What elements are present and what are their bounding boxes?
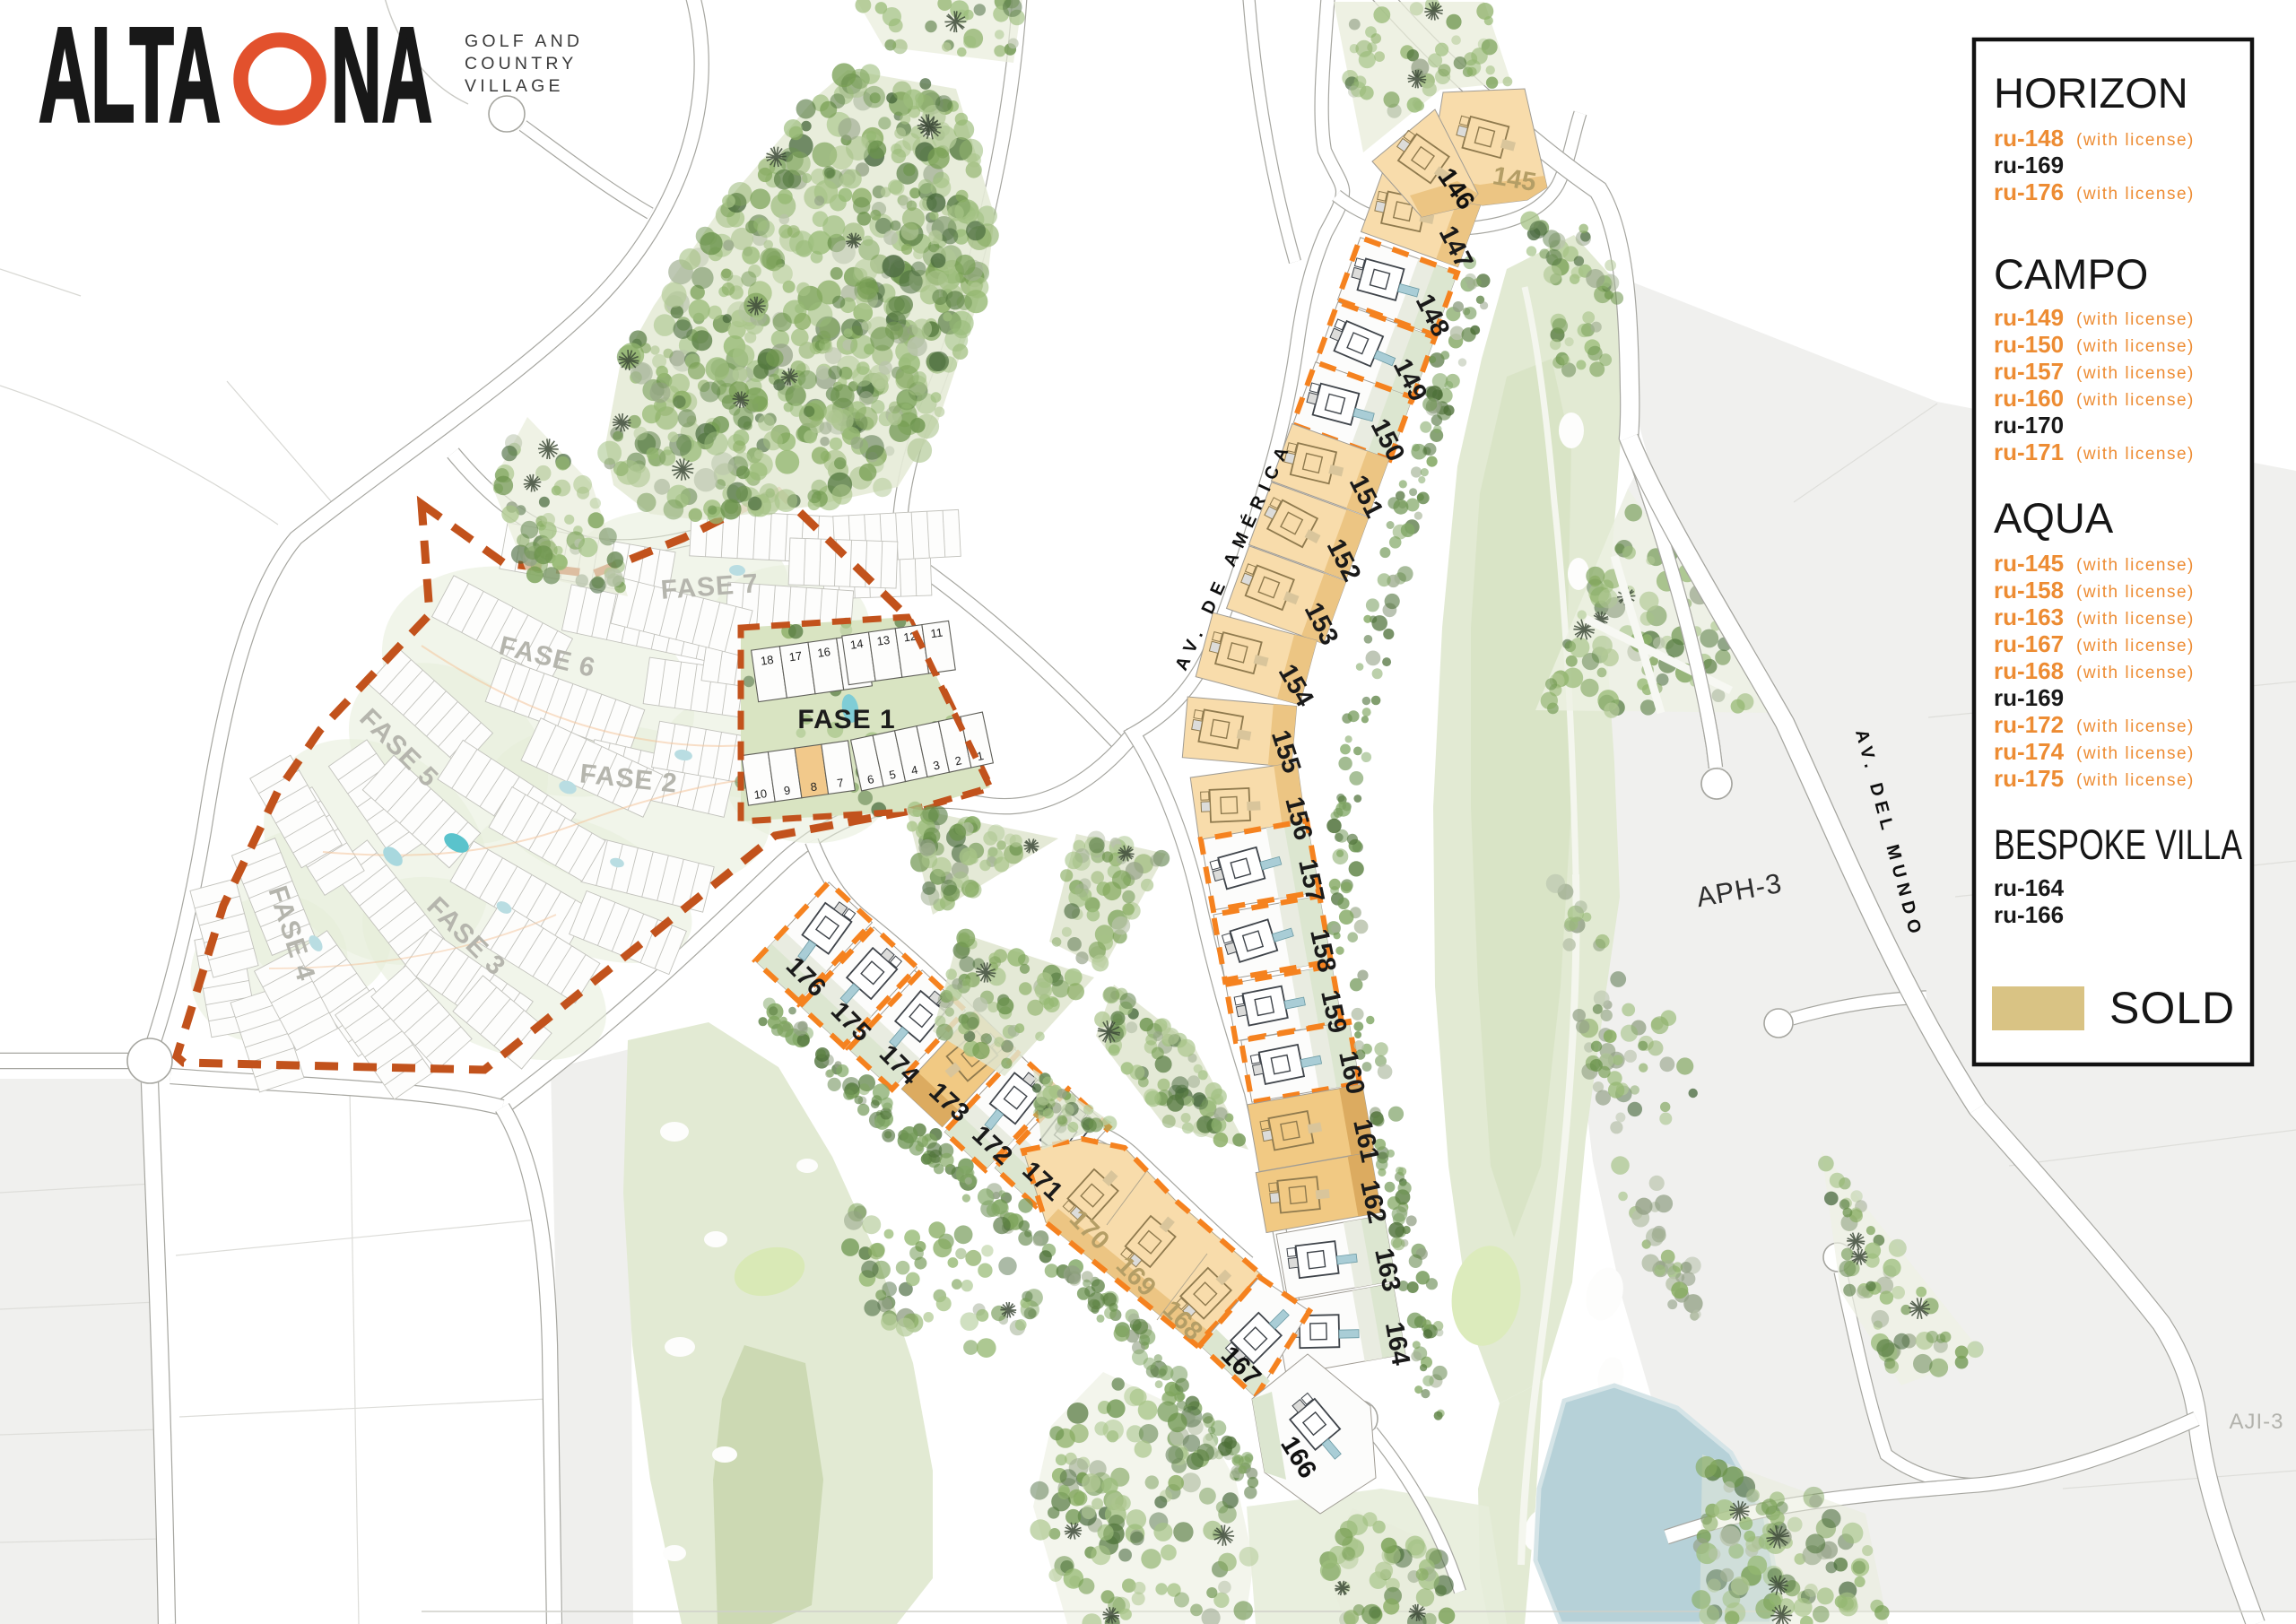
svg-text:(with license): (with license)	[2076, 337, 2195, 356]
svg-text:10: 10	[753, 786, 768, 802]
svg-text:(with license): (with license)	[2076, 364, 2195, 383]
svg-text:(with license): (with license)	[2076, 664, 2195, 682]
svg-text:(with license): (with license)	[2076, 637, 2195, 656]
svg-text:16: 16	[816, 645, 831, 660]
svg-text:17: 17	[788, 648, 803, 664]
svg-text:ru-167: ru-167	[1994, 630, 2064, 657]
svg-text:(with license): (with license)	[2076, 610, 2195, 629]
svg-text:(with license): (with license)	[2076, 310, 2195, 329]
svg-text:ru-150: ru-150	[1994, 331, 2064, 358]
svg-text:ru-170: ru-170	[1994, 412, 2064, 439]
svg-text:HORIZON: HORIZON	[1994, 69, 2188, 117]
svg-text:ru-171: ru-171	[1994, 439, 2064, 465]
svg-text:CAMPO: CAMPO	[1994, 250, 2148, 298]
svg-text:(with license): (with license)	[2076, 556, 2195, 575]
svg-text:ru-169: ru-169	[1994, 152, 2064, 178]
svg-text:(with license): (with license)	[2076, 185, 2195, 204]
svg-text:ru-164: ru-164	[1994, 874, 2065, 901]
svg-text:ru-157: ru-157	[1994, 358, 2064, 385]
svg-text:11: 11	[930, 626, 944, 641]
svg-text:(with license): (with license)	[2076, 391, 2195, 410]
svg-text:ru-175: ru-175	[1994, 765, 2064, 792]
svg-text:VILLAGE: VILLAGE	[465, 76, 564, 96]
svg-text:SOLD: SOLD	[2109, 983, 2235, 1033]
svg-text:ru-168: ru-168	[1994, 657, 2064, 684]
svg-text:FASE 1: FASE 1	[797, 705, 895, 734]
svg-text:(with license): (with license)	[2076, 744, 2195, 763]
svg-text:(with license): (with license)	[2076, 717, 2195, 736]
svg-text:(with license): (with license)	[2076, 583, 2195, 602]
svg-text:13: 13	[876, 633, 891, 648]
svg-text:COUNTRY: COUNTRY	[465, 54, 577, 74]
svg-text:BESPOKE VILLA: BESPOKE VILLA	[1994, 821, 2242, 868]
svg-text:ru-166: ru-166	[1994, 901, 2064, 928]
svg-text:AJI-3: AJI-3	[2229, 1410, 2283, 1434]
svg-text:ru-163: ru-163	[1994, 604, 2064, 630]
svg-text:ru-145: ru-145	[1994, 550, 2064, 577]
svg-text:ru-169: ru-169	[1994, 684, 2064, 711]
svg-text:(with license): (with license)	[2076, 771, 2195, 790]
svg-text:ru-160: ru-160	[1994, 385, 2064, 412]
svg-text:(with license): (with license)	[2076, 445, 2195, 464]
svg-text:NA: NA	[331, 0, 432, 150]
svg-text:AQUA: AQUA	[1994, 494, 2114, 542]
svg-text:18: 18	[760, 653, 774, 668]
svg-text:GOLF AND: GOLF AND	[465, 31, 583, 51]
svg-text:ALTA: ALTA	[39, 0, 221, 150]
svg-text:ru-174: ru-174	[1994, 738, 2065, 765]
svg-text:ru-176: ru-176	[1994, 178, 2064, 205]
svg-text:(with license): (with license)	[2076, 131, 2195, 150]
svg-text:ru-148: ru-148	[1994, 125, 2064, 152]
svg-text:ru-158: ru-158	[1994, 577, 2064, 604]
svg-text:ru-172: ru-172	[1994, 711, 2064, 738]
svg-text:14: 14	[849, 637, 864, 652]
svg-text:ru-149: ru-149	[1994, 304, 2064, 331]
